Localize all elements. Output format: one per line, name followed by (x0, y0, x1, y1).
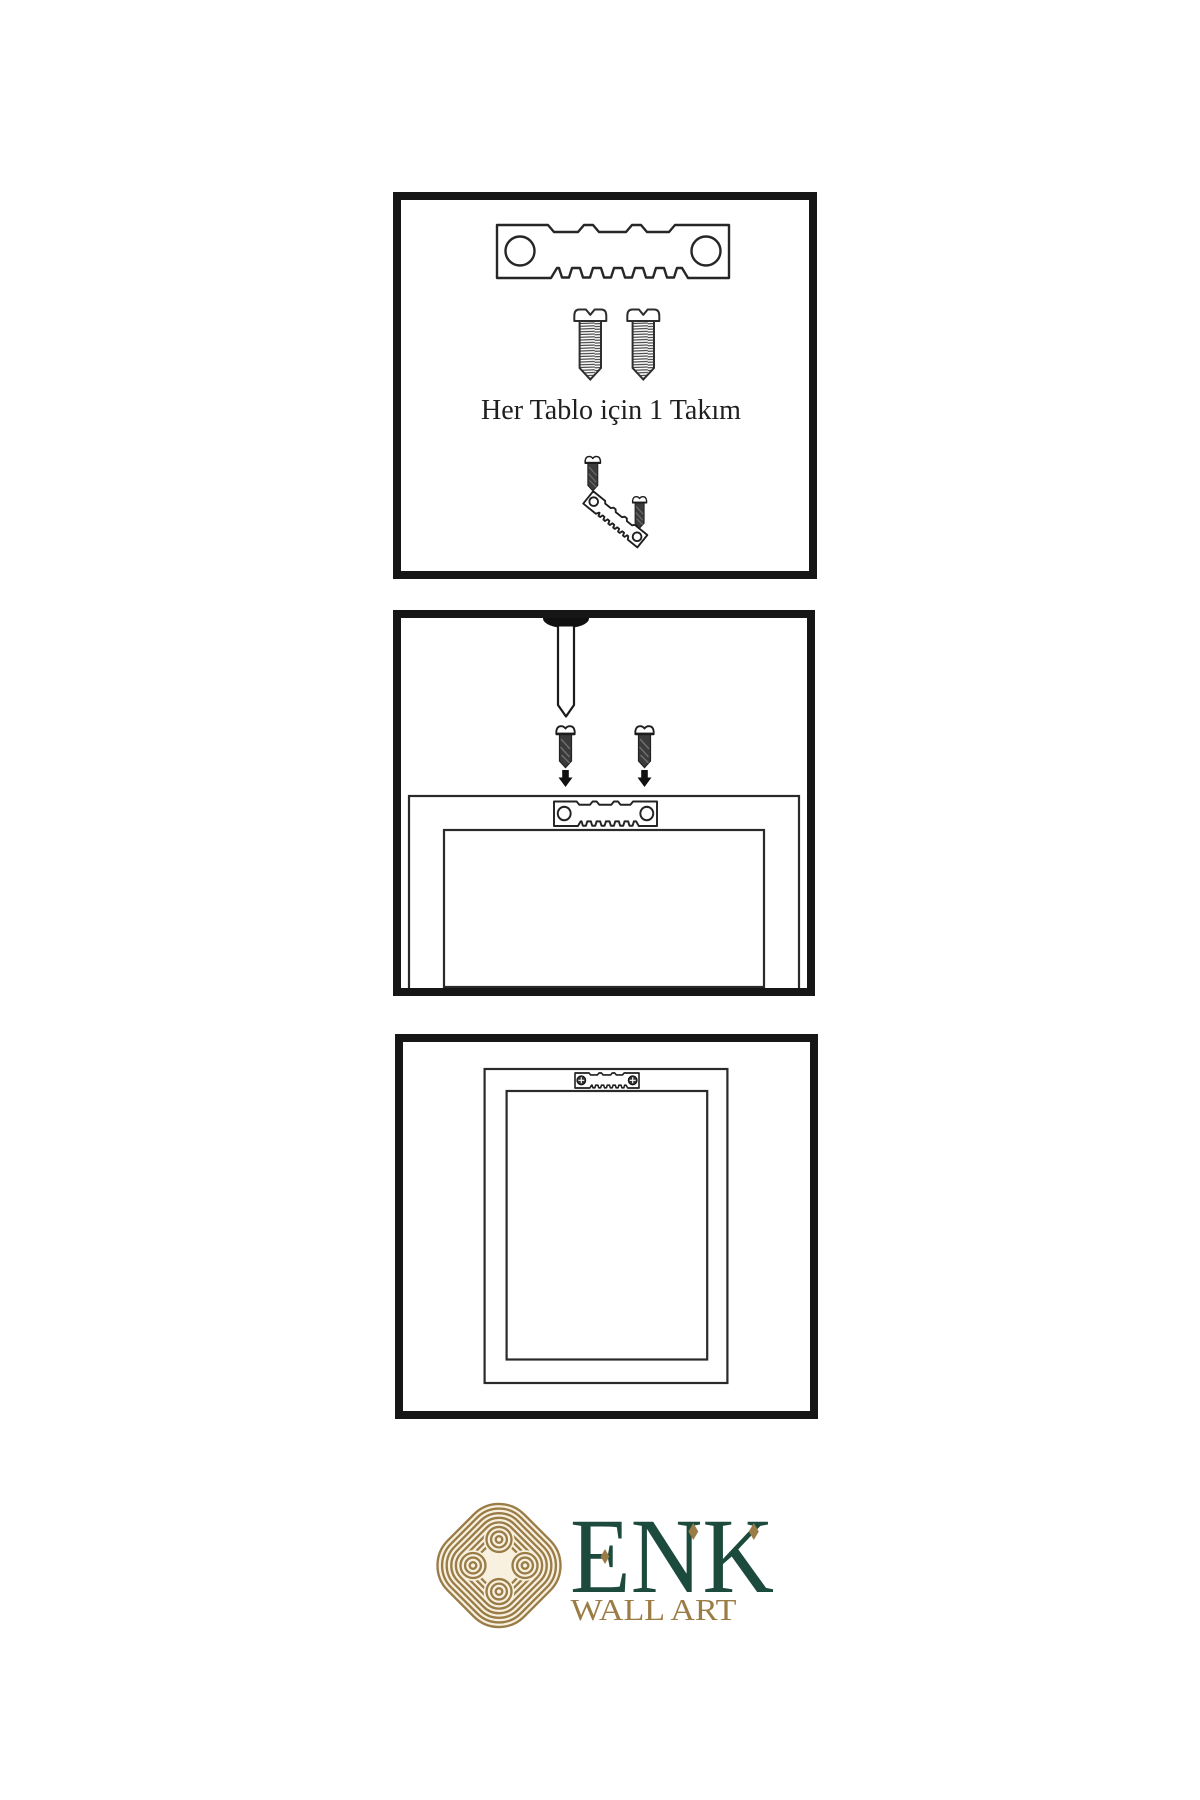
svg-text:WALL ART: WALL ART (571, 1592, 737, 1627)
svg-text:Her Tablo için 1 Takım: Her Tablo için 1 Takım (481, 394, 741, 426)
